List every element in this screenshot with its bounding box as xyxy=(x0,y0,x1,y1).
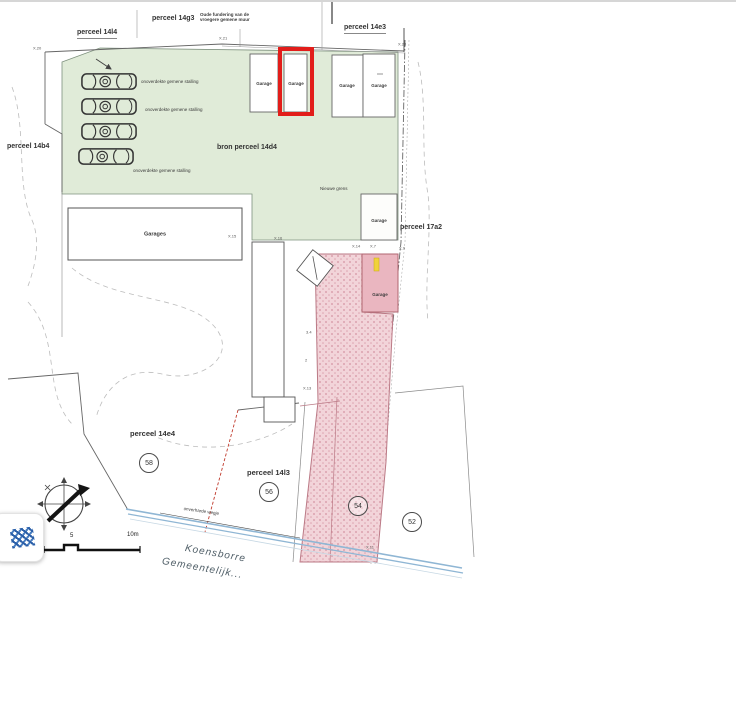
building-annex xyxy=(264,397,295,422)
note-parking-3: onoverdekte gemene stalling xyxy=(133,168,191,173)
house-number-56: 56 xyxy=(259,482,279,502)
yellow-survey-mark xyxy=(374,258,379,271)
house-number-56-text: 56 xyxy=(265,489,273,496)
garage-label-3: Garage xyxy=(339,83,355,88)
parcel-label-14b4: perceel 14b4 xyxy=(7,143,49,151)
house-number-54: 54 xyxy=(348,496,368,516)
pink-garage-box xyxy=(362,254,398,312)
note-new-boundary: Nieuwe grens xyxy=(320,186,348,191)
blue-weave-pattern-icon xyxy=(10,526,35,548)
scale-label-5: 5 xyxy=(70,533,73,540)
scale-bar xyxy=(44,545,140,553)
house-number-52-text: 52 xyxy=(408,519,416,526)
parcel-label-14l4: perceel 14l4 xyxy=(77,29,117,39)
garage-label-2-highlighted: Garage xyxy=(288,81,304,86)
dim-label-1: 3.4 xyxy=(306,330,312,335)
parcel-label-14e4: perceel 14e4 xyxy=(130,430,175,439)
house-number-58-text: 58 xyxy=(145,460,153,467)
note-parking-2: onoverdekte gemene stalling xyxy=(145,107,203,112)
house-number-58: 58 xyxy=(139,453,159,473)
note-parking-1: onoverdekte gemene stalling xyxy=(141,79,199,84)
parcel-label-14l3: perceel 14l3 xyxy=(247,469,290,478)
cadastral-site-plan: perceel 14l4 perceel 14g3 Oude fundering… xyxy=(0,0,736,711)
dim-label-2: 2 xyxy=(305,358,307,363)
plan-drawing xyxy=(0,2,736,711)
garage-label-1: Garage xyxy=(256,81,272,86)
parcel-label-source-14d4: bron perceel 14d4 xyxy=(217,144,277,152)
survey-point-x7: X.7 xyxy=(370,244,376,249)
parcel-label-17a2: perceel 17a2 xyxy=(400,224,442,232)
garage-label-pink: Garage xyxy=(372,292,388,297)
house-number-52: 52 xyxy=(402,512,422,532)
survey-point-x15: X.15 xyxy=(228,234,236,239)
parcel-label-top-right: perceel 14e3 xyxy=(344,24,386,34)
note-old-foundation: Oude fundering van de vroegere gemene mu… xyxy=(200,12,260,22)
long-building xyxy=(252,242,284,397)
parcel-label-top-center: perceel 14g3 xyxy=(152,15,194,23)
garages-building-label: Garages xyxy=(144,231,166,237)
garage-label-new-boundary: Garage xyxy=(371,218,387,223)
compass-rose-icon xyxy=(37,477,91,531)
new-boundary-garage-box xyxy=(361,194,397,240)
survey-point-x14: X.14 xyxy=(352,244,360,249)
survey-point-x21: X.21 xyxy=(219,36,227,41)
map-thumbnail-tile[interactable] xyxy=(0,513,44,562)
survey-point-x16: X.16 xyxy=(274,236,282,241)
survey-point-x9: X.9 xyxy=(399,246,405,251)
survey-point-x13: X.13 xyxy=(303,386,311,391)
house-number-54-text: 54 xyxy=(354,503,362,510)
garage-label-4: Garage xyxy=(371,83,387,88)
survey-point-x23: X.23 xyxy=(398,42,406,47)
survey-point-x20: X.20 xyxy=(33,46,41,51)
survey-point-x11: X.11 xyxy=(366,545,374,550)
scale-label-10m: 10m xyxy=(127,532,139,539)
